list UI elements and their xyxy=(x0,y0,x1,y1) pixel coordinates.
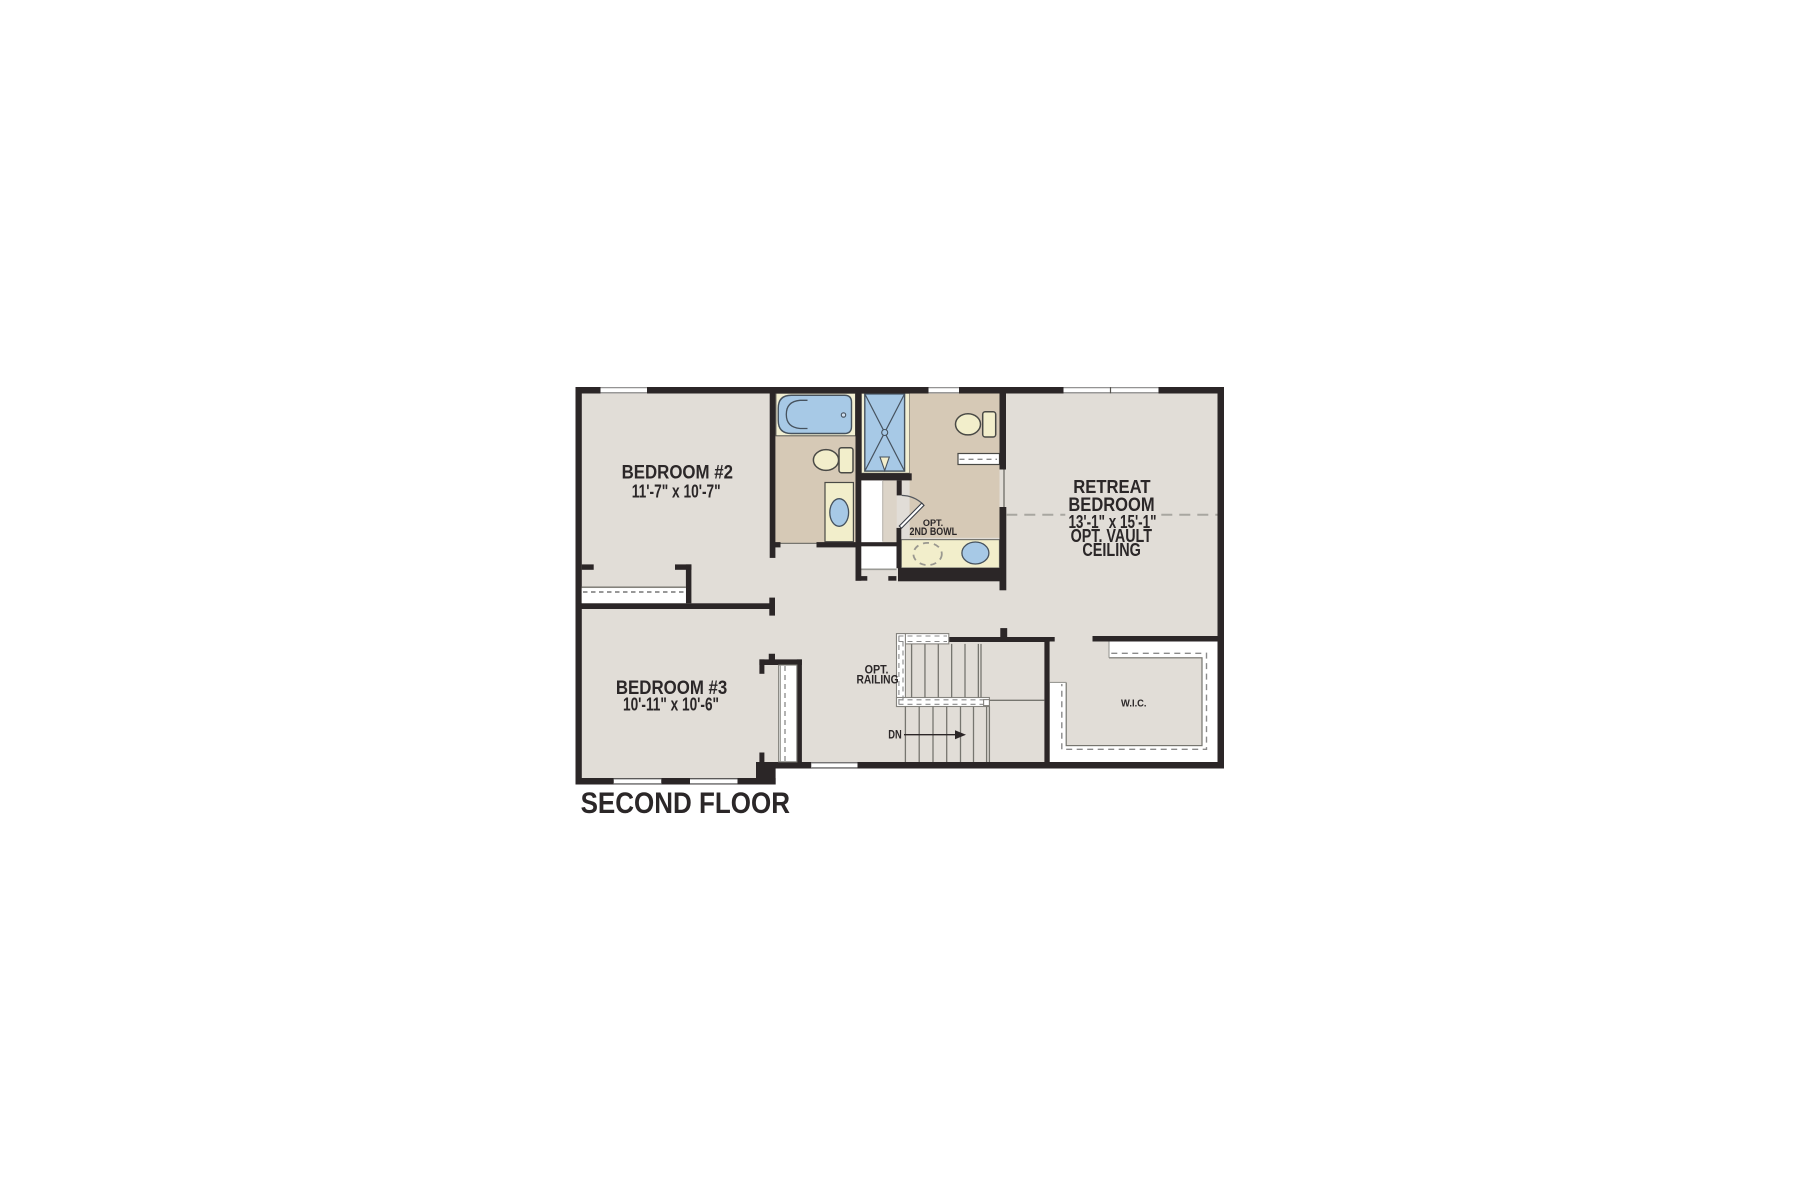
svg-text:SECOND FLOOR: SECOND FLOOR xyxy=(581,787,790,820)
svg-text:2ND BOWL: 2ND BOWL xyxy=(910,526,958,538)
svg-text:CEILING: CEILING xyxy=(1082,539,1141,560)
svg-text:RAILING: RAILING xyxy=(856,674,898,687)
svg-text:DN: DN xyxy=(888,728,902,742)
svg-text:11'-7" x 10'-7": 11'-7" x 10'-7" xyxy=(632,480,721,501)
svg-text:10'-11" x 10'-6": 10'-11" x 10'-6" xyxy=(623,693,719,714)
svg-text:W.I.C.: W.I.C. xyxy=(1121,698,1147,710)
